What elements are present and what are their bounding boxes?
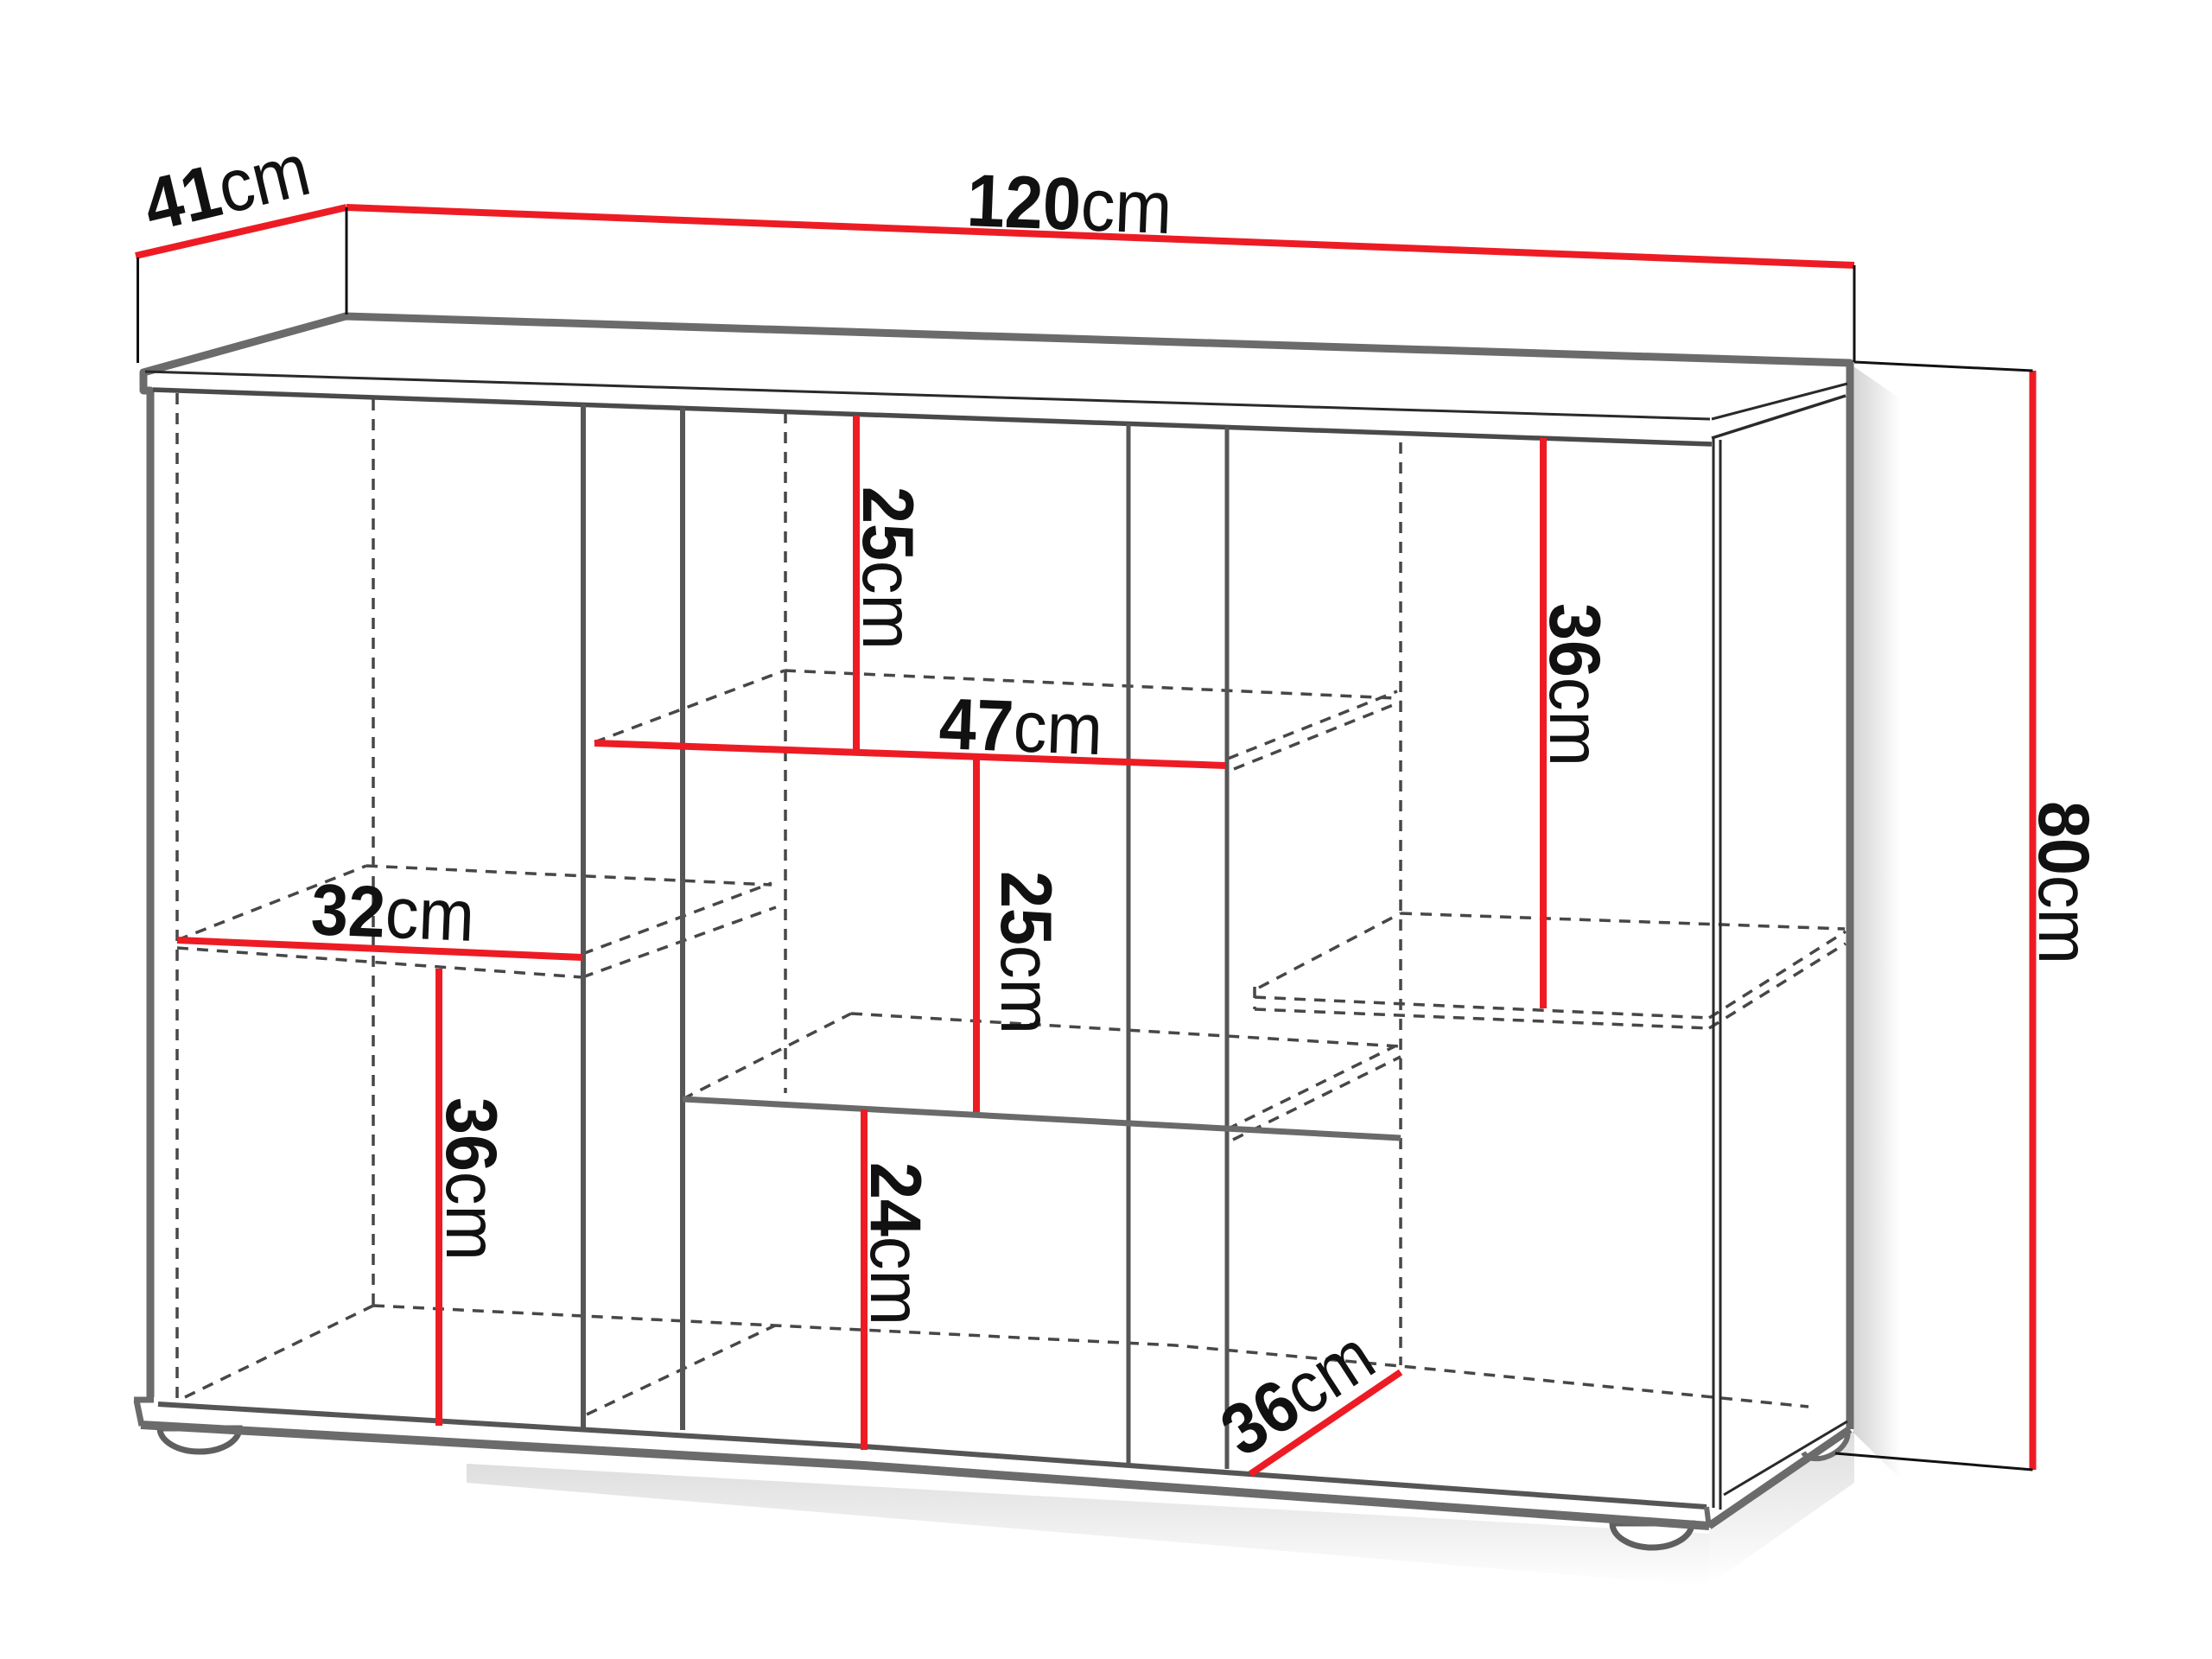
svg-text:36cm: 36cm xyxy=(1534,603,1615,766)
svg-text:80cm: 80cm xyxy=(2023,801,2104,964)
svg-text:36cm: 36cm xyxy=(430,1097,512,1261)
svg-text:24cm: 24cm xyxy=(855,1162,936,1325)
svg-text:25cm: 25cm xyxy=(847,486,928,650)
svg-text:25cm: 25cm xyxy=(985,871,1066,1034)
svg-text:120cm: 120cm xyxy=(965,158,1173,250)
svg-text:47cm: 47cm xyxy=(938,683,1103,771)
svg-text:32cm: 32cm xyxy=(309,869,476,957)
